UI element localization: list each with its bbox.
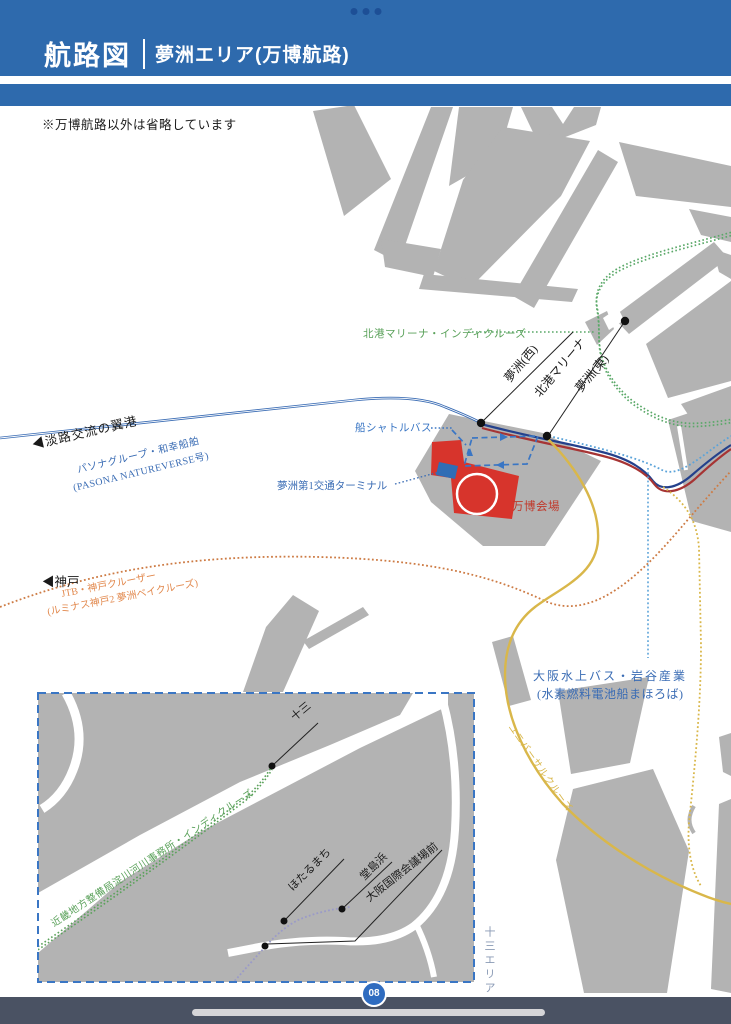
route-map: ※万博航路以外は省略しています 北港マリーナ・インディクルーズ 夢洲(西) 北港… bbox=[0, 0, 731, 1024]
label-expo-venue: 万博会場 bbox=[512, 500, 560, 513]
label-hokko-cruise: 北港マリーナ・インディクルーズ bbox=[363, 327, 526, 340]
label-terminal: 夢洲第1交通ターミナル bbox=[277, 479, 387, 492]
header-stripe bbox=[0, 76, 731, 84]
inset-map bbox=[28, 693, 474, 984]
page-header: 航路図 夢洲エリア(万博航路) bbox=[0, 0, 731, 106]
title-divider bbox=[143, 39, 145, 69]
label-suijo-1: 大阪水上バス・岩谷産業 bbox=[533, 668, 687, 683]
page-subtitle: 夢洲エリア(万博航路) bbox=[155, 40, 350, 67]
page-number-badge: 08 bbox=[361, 981, 387, 1007]
document-page: ※万博航路以外は省略しています 北港マリーナ・インディクルーズ 夢洲(西) 北港… bbox=[0, 0, 731, 1024]
more-options-icon[interactable] bbox=[350, 8, 381, 15]
juso-area-label: 十三エリア bbox=[481, 926, 497, 996]
stop-hokko-marina bbox=[621, 317, 629, 325]
label-suijo-2: (水素燃料電池船まほろば) bbox=[537, 686, 684, 701]
map-note: ※万博航路以外は省略しています bbox=[42, 117, 237, 132]
label-universal: ユニバーサルクルーズ bbox=[506, 722, 576, 814]
page-title: 航路図 bbox=[44, 34, 131, 73]
stop-yumeshima-west bbox=[477, 419, 485, 427]
stop-yumeshima-east bbox=[543, 432, 551, 440]
home-indicator[interactable] bbox=[192, 1009, 545, 1016]
label-yumeshima-west: 夢洲(西) bbox=[501, 342, 540, 385]
label-boat-shuttle: 船シャトルバス bbox=[355, 421, 432, 434]
label-yumeshima-east: 夢洲(東) bbox=[572, 352, 611, 395]
